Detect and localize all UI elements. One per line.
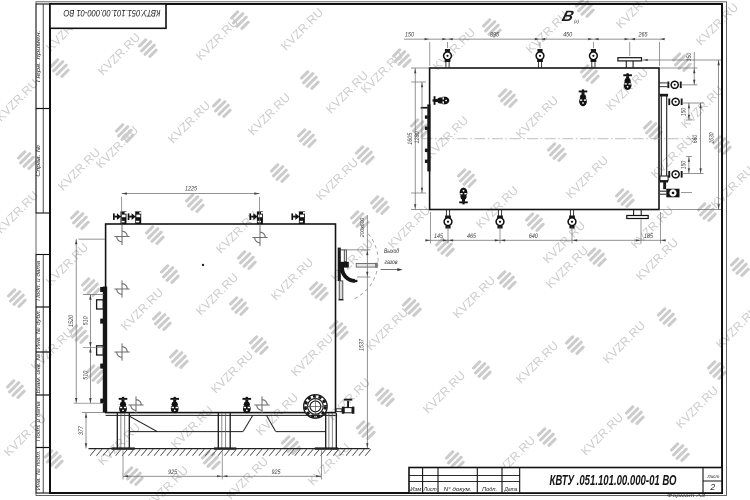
svg-text:КВТУ .051.101.00.000-01 ВО: КВТУ .051.101.00.000-01 ВО	[550, 473, 677, 489]
svg-text:KVZR.RU: KVZR.RU	[430, 25, 478, 73]
svg-text:Выход: Выход	[384, 248, 399, 255]
svg-text:Взам. инв. №: Взам. инв. №	[36, 353, 42, 393]
svg-text:KVZR.RU: KVZR.RU	[245, 90, 293, 138]
svg-text:377: 377	[78, 426, 85, 435]
svg-text:Инв. № дубл.: Инв. № дубл.	[36, 310, 42, 350]
svg-text:150: 150	[680, 160, 687, 169]
svg-text:КВТУ.051.101.00.000-01 ВО: КВТУ.051.101.00.000-01 ВО	[64, 8, 161, 18]
svg-text:KVZR.RU: KVZR.RU	[208, 348, 256, 396]
svg-text:1225: 1225	[185, 186, 197, 193]
svg-text:Изм: Изм	[410, 487, 422, 493]
svg-text:2: 2	[709, 482, 715, 492]
svg-text:(г): (г)	[574, 19, 580, 24]
svg-text:KVZR.RU: KVZR.RU	[165, 98, 213, 146]
svg-text:KVZR.RU: KVZR.RU	[0, 188, 41, 236]
svg-text:640: 640	[529, 233, 538, 240]
svg-text:KVZR.RU: KVZR.RU	[513, 338, 561, 386]
svg-text:KVZR.RU: KVZR.RU	[420, 368, 468, 416]
svg-text:KVZR.RU: KVZR.RU	[693, 0, 741, 48]
svg-text:145: 145	[434, 233, 443, 240]
svg-text:KVZR.RU: KVZR.RU	[363, 305, 411, 353]
svg-text:510: 510	[82, 370, 89, 379]
svg-text:N° докум.: N° докум.	[444, 487, 472, 493]
svg-text:KVZR.RU: KVZR.RU	[55, 145, 103, 193]
svg-text:150: 150	[405, 32, 414, 39]
svg-text:Лист: Лист	[423, 487, 437, 493]
svg-text:450: 450	[563, 32, 572, 39]
svg-text:KVZR.RU: KVZR.RU	[600, 318, 648, 366]
svg-text:150: 150	[686, 52, 693, 61]
svg-text:895: 895	[490, 32, 499, 39]
svg-text:KVZR.RU: KVZR.RU	[513, 93, 561, 141]
svg-text:KVZR.RU: KVZR.RU	[450, 273, 498, 321]
svg-text:510: 510	[82, 316, 89, 325]
svg-text:KVZR.RU: KVZR.RU	[95, 420, 143, 468]
svg-text:KVZR.RU: KVZR.RU	[95, 30, 143, 78]
svg-text:185: 185	[644, 233, 653, 240]
svg-text:KVZR.RU: KVZR.RU	[713, 303, 750, 351]
svg-text:Формат А3: Формат А3	[667, 493, 705, 499]
svg-text:Дата: Дата	[503, 487, 517, 493]
svg-text:200х600: 200х600	[360, 217, 366, 238]
svg-text:KVZR.RU: KVZR.RU	[385, 203, 433, 251]
svg-text:925: 925	[168, 469, 177, 476]
svg-text:1537: 1537	[359, 339, 366, 351]
svg-text:1280: 1280	[414, 131, 421, 143]
svg-text:KVZR.RU: KVZR.RU	[193, 270, 241, 318]
svg-text:KVZR.RU: KVZR.RU	[673, 383, 721, 431]
svg-text:Справ. №: Справ. №	[36, 145, 42, 177]
svg-text:Подп.: Подп.	[482, 487, 497, 493]
svg-text:Лист: Лист	[706, 474, 719, 480]
svg-text:Подп. и дата: Подп. и дата	[36, 261, 42, 301]
svg-text:KVZR.RU: KVZR.RU	[678, 83, 726, 131]
svg-text:465: 465	[467, 233, 476, 240]
svg-text:газов: газов	[385, 259, 399, 266]
svg-text:KVZR.RU: KVZR.RU	[0, 76, 41, 124]
svg-text:KVZR.RU: KVZR.RU	[278, 5, 326, 53]
svg-text:KVZR.RU: KVZR.RU	[313, 155, 361, 203]
svg-text:150: 150	[680, 107, 687, 116]
svg-text:1520: 1520	[68, 315, 75, 327]
svg-text:KVZR.RU: KVZR.RU	[193, 15, 241, 63]
svg-text:KVZR.RU: KVZR.RU	[563, 153, 611, 201]
svg-text:1630: 1630	[709, 132, 716, 143]
svg-text:KVZR.RU: KVZR.RU	[288, 331, 336, 379]
svg-text:KVZR.RU: KVZR.RU	[578, 410, 626, 458]
svg-text:KVZR.RU: KVZR.RU	[253, 390, 301, 438]
svg-text:Перв. примен.: Перв. примен.	[36, 30, 42, 82]
svg-text:1605: 1605	[407, 133, 414, 145]
svg-text:KVZR.RU: KVZR.RU	[268, 255, 316, 303]
svg-text:660: 660	[692, 134, 699, 143]
svg-text:Подп. и дата: Подп. и дата	[36, 401, 42, 441]
svg-text:925: 925	[272, 469, 281, 476]
svg-text:Инв. № подл.: Инв. № подл.	[36, 450, 42, 490]
svg-text:KVZR.RU: KVZR.RU	[708, 163, 750, 211]
svg-text:265: 265	[638, 32, 648, 39]
